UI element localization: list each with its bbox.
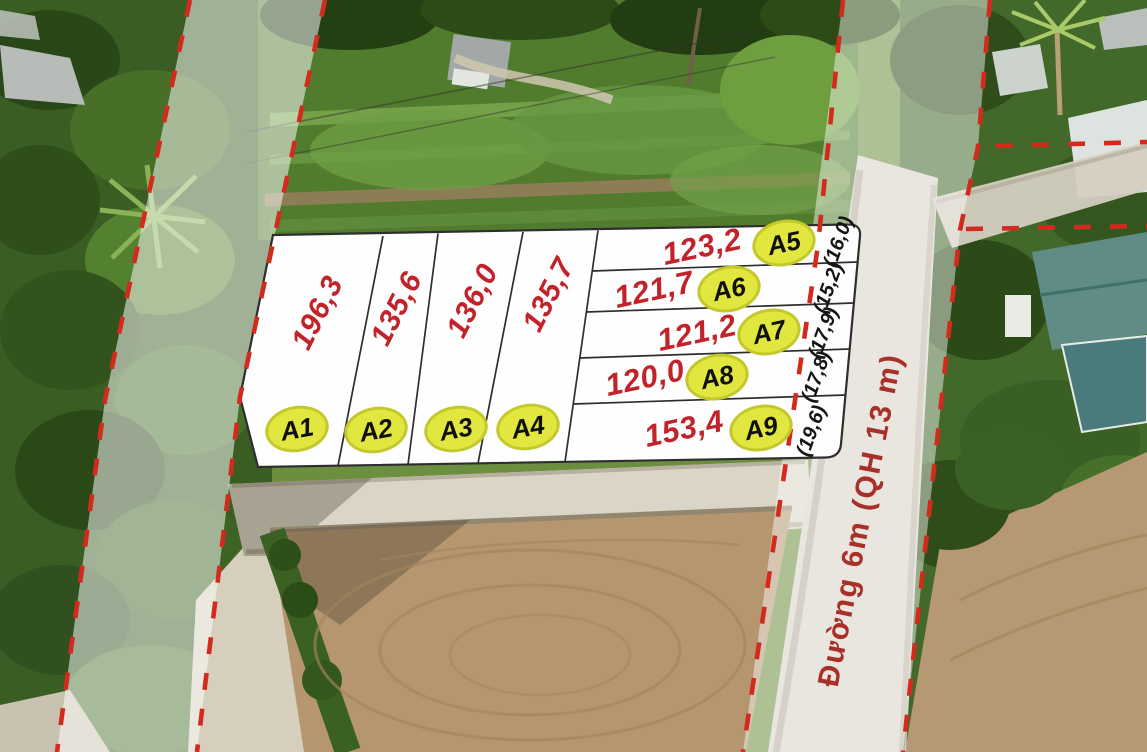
land-plot-map: 196,3 135,6 136,0 135,7 A1 A2 A3 A4 123,…: [0, 0, 1147, 752]
plowed-field: [269, 508, 792, 752]
roof-teal: [1032, 232, 1147, 350]
aerial-photo-background: [0, 0, 1147, 752]
orchard: [258, 0, 900, 240]
